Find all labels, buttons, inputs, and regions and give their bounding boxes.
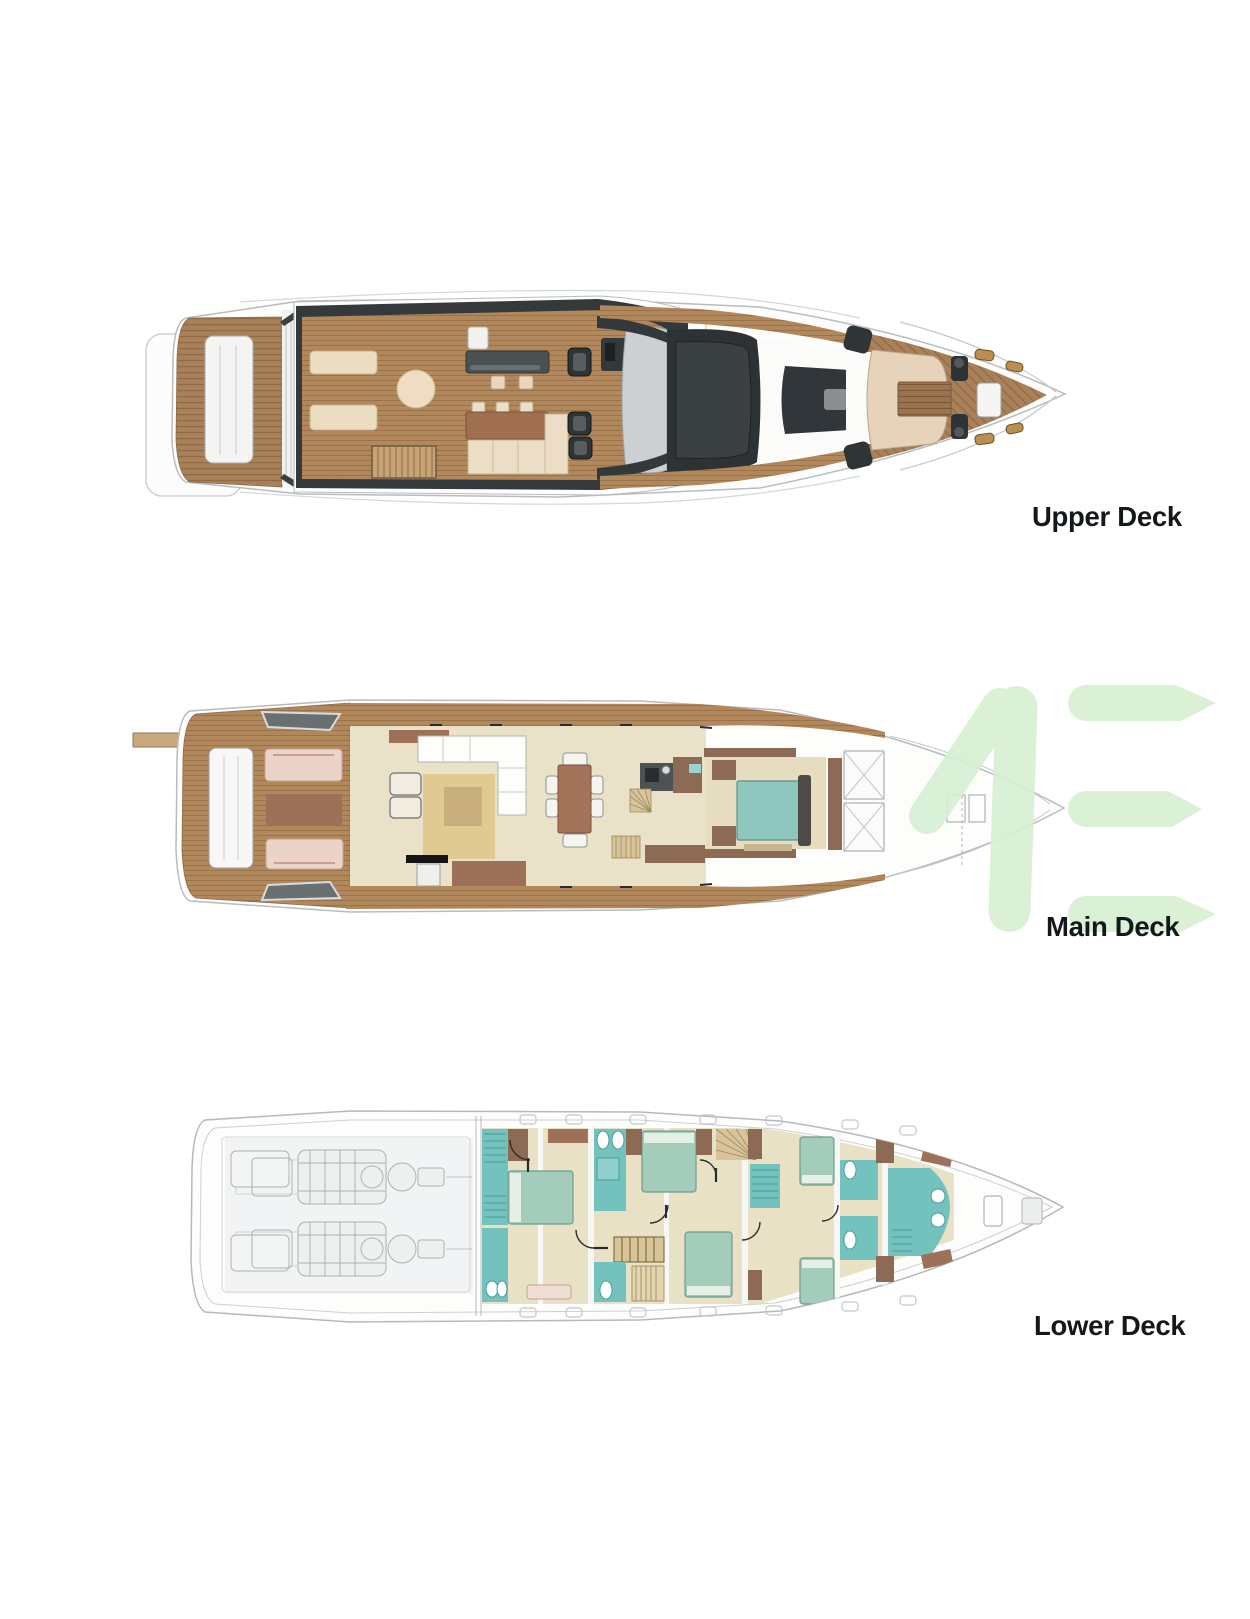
svg-text:Upper Deck: Upper Deck [1032, 501, 1183, 532]
svg-text:Lower Deck: Lower Deck [1034, 1310, 1186, 1341]
svg-text:Main Deck: Main Deck [1046, 911, 1180, 942]
